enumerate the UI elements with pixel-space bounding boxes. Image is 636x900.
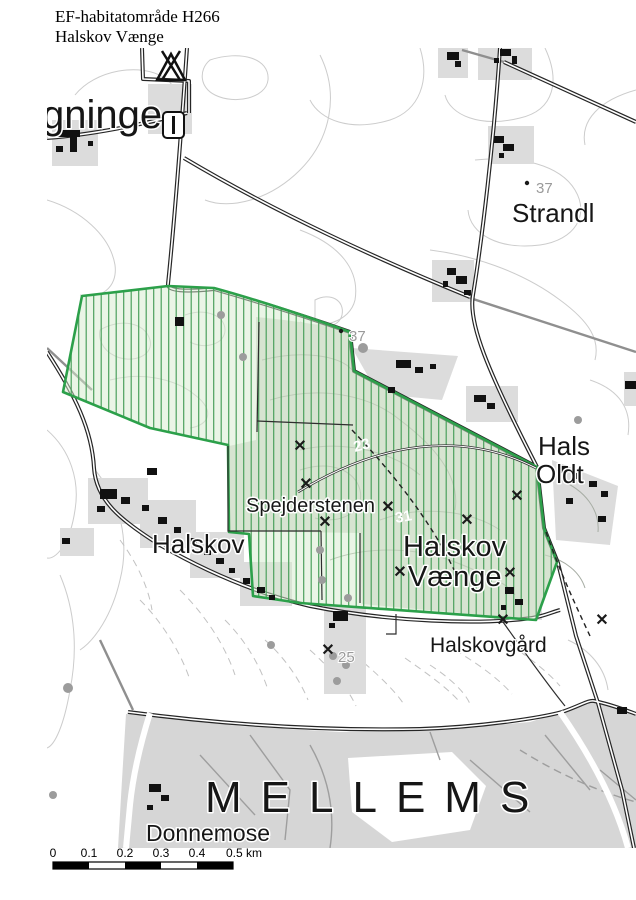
scale-tick-3: 0.3	[153, 846, 170, 860]
title-line-1: EF-habitatområde H266	[55, 7, 220, 26]
monument-icon: ✕	[299, 476, 312, 493]
monument-icon: ✕	[496, 612, 509, 629]
label-donnemose: Donnemose	[146, 820, 270, 846]
label-spejderstenen: Spejderstenen	[246, 495, 375, 517]
scale-tick-4: 0.4	[189, 846, 206, 860]
monument-icon: ✕	[293, 438, 306, 455]
scale-tick-1: 0.1	[81, 846, 98, 860]
scale-segment	[53, 862, 89, 869]
scale-tick-2: 0.2	[117, 846, 134, 860]
map-area: ✕ ✕ ✕ ✕ ✕ ✕ ✕ ✕ ✕ ✕ ✕ 37 37 25	[42, 46, 636, 848]
label-mellemskoven: MELLEMS	[205, 773, 548, 822]
signpost-icon	[163, 112, 184, 138]
scale-segment	[125, 862, 161, 869]
label-hals: Hals	[538, 431, 590, 461]
monument-icon: ✕	[393, 564, 406, 581]
map-title: EF-habitatområde H266 Halskov Vænge	[55, 7, 220, 46]
label-gninge: gninge	[42, 93, 162, 137]
map-canvas: EF-habitatområde H266 Halskov Vænge	[0, 0, 636, 900]
spot-height-37-east: 37	[536, 180, 553, 197]
label-strandl: Strandl	[512, 198, 594, 228]
scale-tick-0: 0	[50, 846, 57, 860]
monument-icon: ✕	[381, 499, 394, 516]
label-oldt: Oldt	[536, 459, 584, 489]
scale-tick-5: 0.5 km	[226, 846, 262, 860]
scale-bar: 0 0.1 0.2 0.3 0.4 0.5 km	[50, 846, 262, 869]
monument-icon: ✕	[510, 488, 523, 505]
label-halskov-vaenge-1: Halskov	[403, 531, 507, 563]
monument-icon: ✕	[503, 565, 516, 582]
label-halskov-village: Halskov	[152, 529, 244, 559]
label-halskovgaard: Halskovgård	[430, 634, 547, 657]
monument-icon: ✕	[595, 612, 608, 629]
contour-label-31: 31	[394, 507, 413, 527]
monument-icon: ✕	[460, 512, 473, 529]
title-line-2: Halskov Vænge	[55, 27, 164, 46]
monument-icon: ✕	[321, 642, 334, 659]
spot-height-25: 25	[338, 649, 355, 666]
spot-height-37-mid: 37	[349, 328, 366, 345]
scale-segment	[197, 862, 233, 869]
label-halskov-vaenge-2: Vænge	[408, 561, 502, 593]
map-document: EF-habitatområde H266 Halskov Vænge	[0, 0, 636, 900]
